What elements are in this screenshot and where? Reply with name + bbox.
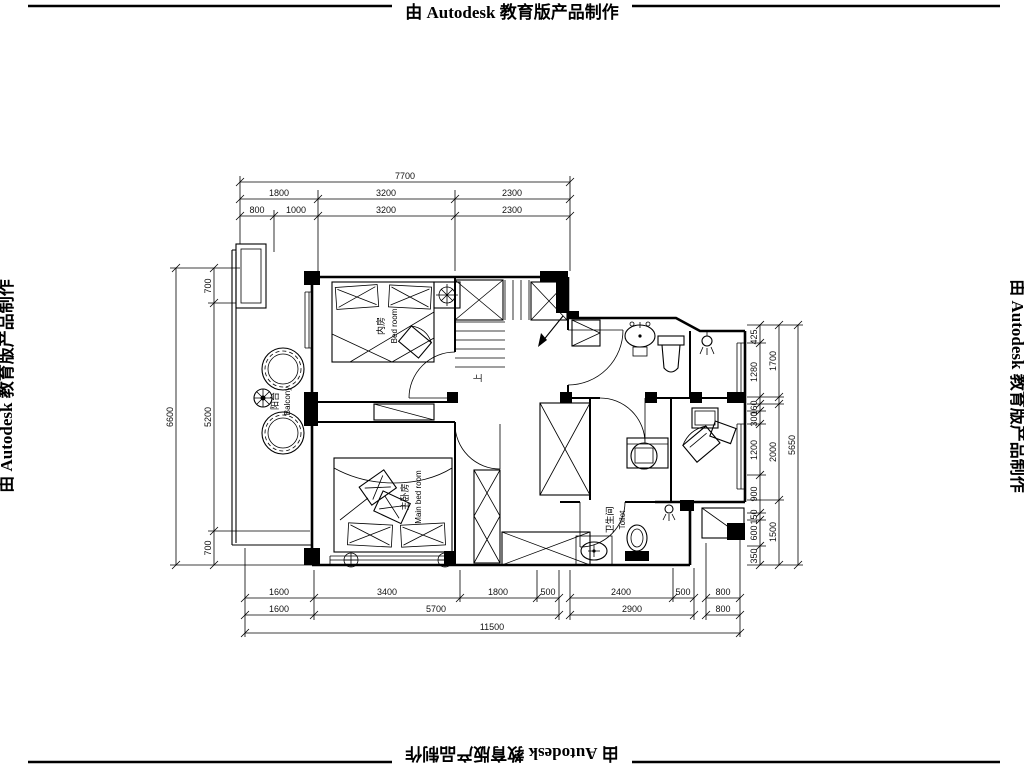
flue-shaft [236,244,266,308]
dim-right: 425 1280 160 300 1200 900 150 600 350 17… [747,321,803,569]
dim-label: 6600 [165,407,175,427]
dim-label: 150 [749,509,759,524]
dim-label: 1280 [749,362,759,382]
plot-border [28,6,1000,762]
bedroom: 内房 Bed room [305,282,460,398]
staircase: 上 [455,280,567,383]
storage-hatch [502,532,590,565]
desk-chair-icon [631,443,657,469]
dim-label: 5700 [426,604,446,614]
dim-label: 1500 [768,522,778,542]
sink-icon [576,536,612,565]
dim-label: 425 [749,329,759,344]
round-chair-icon [262,412,304,454]
door-arc [409,352,455,398]
dim-label: 1600 [269,604,289,614]
stamp-left: 由 Autodesk 教育版产品制作 [0,279,16,492]
dim-label: 500 [540,587,555,597]
dim-label: 3200 [376,205,396,215]
floor-plan-page: 由 Autodesk 教育版产品制作 由 Autodesk 教育版产品制作 由 … [0,0,1024,768]
dim-label: 700 [203,540,213,555]
main-bed-icon [334,458,452,552]
door-arc [455,424,500,469]
dim-label: 1800 [488,587,508,597]
dim-label: 3200 [376,188,396,198]
wardrobe-hatch [474,470,500,563]
stamp-top: 由 Autodesk 教育版产品制作 [405,2,618,22]
dim-label: 1200 [749,440,759,460]
pillars [304,271,745,565]
dim-top: 7700 1800 3200 2300 800 1000 3200 2300 [236,171,574,271]
door-arc [600,398,645,443]
bedroom-label-en: Bed room [390,308,399,343]
ceiling-lamp-icon [434,282,460,308]
stamp-right: 由 Autodesk 教育版产品制作 [1008,279,1024,492]
dim-label: 1600 [269,587,289,597]
chair-icon [399,323,434,358]
toilet-label-en: Toilet [618,510,627,529]
balcony-label-zh: 阳台 [269,392,280,410]
dim-label: 2300 [502,205,522,215]
dim-label: 5650 [787,435,797,455]
main-bedroom-label-zh: 主卧房 [399,483,410,510]
dim-label: 800 [715,604,730,614]
dim-label: 5200 [203,407,213,427]
study-room [600,398,668,469]
duct-icon [572,320,600,346]
balcony-label-en: Balcony [283,387,292,415]
dim-label: 2300 [502,188,522,198]
dim-label: 600 [749,525,759,540]
shower-icon [700,331,714,355]
sink-icon [625,322,655,356]
dim-label: 2400 [611,587,631,597]
toilet-icon [658,336,684,372]
dim-label: 1800 [269,188,289,198]
dim-label: 300 [749,411,759,426]
dim-label: 2900 [622,604,642,614]
dim-label: 1700 [768,351,778,371]
dim-label: 1000 [286,205,306,215]
door-arc [568,330,623,385]
shower-icon [663,505,675,521]
dim-label: 7700 [395,171,415,181]
stair-up-label: 上 [473,373,483,382]
dim-label: 900 [749,486,759,501]
corridor-cabinet [374,404,434,420]
round-chair-icon [262,348,304,390]
dim-label: 2000 [768,442,778,462]
floor-plan-svg: 由 Autodesk 教育版产品制作 由 Autodesk 教育版产品制作 由 … [0,0,1024,768]
dim-label: 700 [203,278,213,293]
stamp-bottom: 由 Autodesk 教育版产品制作 [405,744,618,764]
dim-label: 350 [749,548,759,563]
dim-label: 3400 [377,587,397,597]
cushion-chair-icon [359,470,396,505]
bathroom-bottom: 卫生间 Toilet [576,502,675,565]
shaft-hatch [540,403,590,495]
dim-label: 500 [675,587,690,597]
dim-label: 800 [715,587,730,597]
armchair-icon [680,423,720,462]
toilet-label-zh: 卫生间 [604,506,615,533]
dim-label: 800 [249,205,264,215]
bathroom-top [568,320,714,385]
dim-label: 11500 [480,622,504,632]
main-bedroom-label-en: Main bed room [414,470,423,524]
balcony: 阳台 Balcony [232,244,312,545]
footstool-icon [710,421,736,444]
bedroom-label-zh: 内房 [375,317,386,335]
toilet-icon [625,525,649,561]
